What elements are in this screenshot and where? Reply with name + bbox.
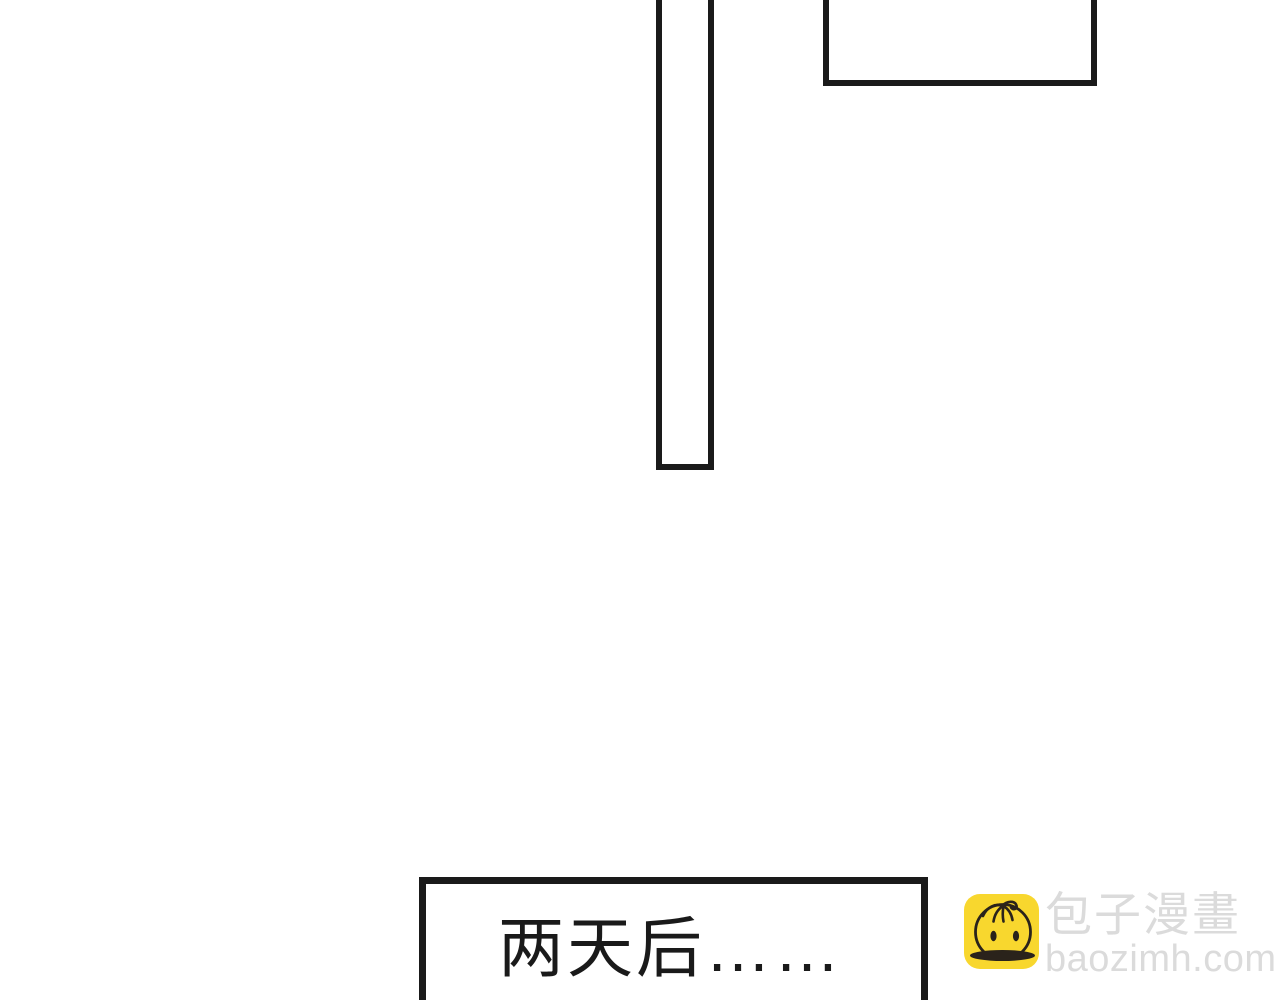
watermark-site-name: 包子漫畫: [1045, 891, 1276, 939]
caption-text: 两天后……: [498, 914, 843, 983]
watermark-text: 包子漫畫 baozimh.com: [1045, 891, 1276, 978]
panel-border-vertical: [656, 0, 714, 470]
comic-page: 两天后……: [0, 0, 1280, 1000]
watermark-site-domain: baozimh.com: [1045, 940, 1276, 978]
caption-box: 两天后……: [419, 877, 928, 1000]
watermark: 包子漫畫 baozimh.com: [964, 891, 1276, 978]
baozi-bun-icon: [964, 894, 1039, 969]
panel-border-top-right: [823, 0, 1097, 86]
